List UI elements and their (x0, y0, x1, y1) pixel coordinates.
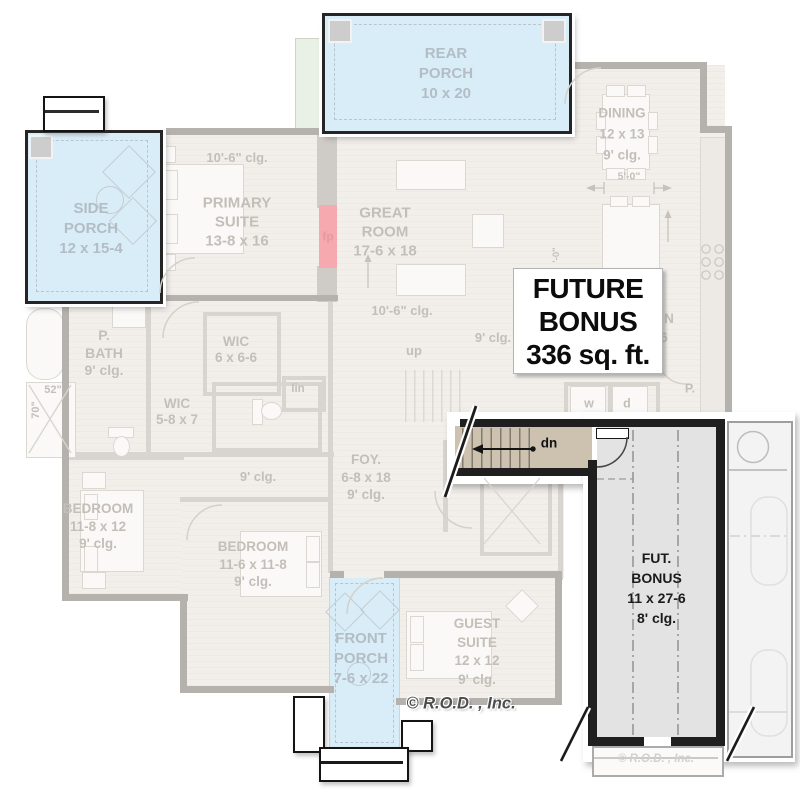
bonus-wall-bottom (671, 737, 725, 746)
dining-chair (648, 136, 658, 154)
stair-down-label: dn (541, 436, 558, 451)
bathtub (26, 308, 64, 380)
shower-dim2-label: 70" (30, 401, 42, 418)
washer-label: w (584, 398, 594, 411)
wall (152, 128, 334, 135)
front-door-opening (344, 571, 384, 578)
sofa (396, 160, 466, 190)
future-bonus-callout: FUTURE BONUS 336 sq. ft. (513, 268, 663, 374)
porch-column (542, 19, 566, 43)
up-label: up (406, 344, 422, 358)
fireplace-wall-upper (317, 134, 337, 208)
bonus-room-label: FUT. BONUS 11 x 27-6 8' clg. (597, 548, 716, 628)
dryer-label: d (623, 398, 631, 411)
hall-ceiling-label: 9' clg. (240, 470, 276, 484)
wall (62, 594, 188, 601)
bonus-wall-left (588, 460, 597, 746)
side-steps (43, 96, 105, 132)
stair-wall-bottom (453, 468, 594, 476)
guest-bath-walls (480, 474, 552, 556)
primary-bath-label: P.BATH9' clg. (84, 327, 123, 380)
copyright-text: © R.O.D. , Inc. (406, 695, 515, 714)
shower-dim-label: 52" (44, 384, 61, 396)
porch-column (328, 19, 352, 43)
kitchen-counter (700, 137, 727, 423)
pantry-label: P. (685, 383, 695, 396)
pillow (306, 562, 320, 588)
toilet-bowl (113, 436, 130, 457)
wall (180, 594, 187, 693)
copyright-text-faint: © R.O.D. , Inc. (618, 753, 694, 765)
w1all (328, 302, 333, 442)
wall (62, 295, 69, 601)
stair-treads (462, 428, 532, 468)
bonus-room-line2: BONUS (597, 568, 716, 588)
toilet-bowl (261, 402, 282, 420)
future-bonus-line2: BONUS (514, 305, 662, 338)
guest-suite-label: GUESTSUITE12 x 129' clg. (454, 615, 501, 689)
front-porch-column (293, 696, 325, 753)
side-porch-label: SIDEPORCH12 x 15-4 (59, 199, 122, 259)
bonus-wall-right (716, 419, 725, 746)
bonus-room-line4: 8' clg. (597, 608, 716, 628)
sofa (396, 264, 466, 296)
pillow (306, 536, 320, 562)
stool (632, 196, 650, 207)
wic1-label: WIC6 x 6-6 (215, 334, 257, 366)
island-dim-label: '-0" (552, 247, 562, 262)
attic-strip (727, 421, 793, 758)
rear-porch-label: REARPORCH10 x 20 (419, 44, 473, 104)
pillow (410, 616, 424, 643)
step-line (321, 761, 403, 764)
pillow (410, 644, 424, 671)
porch-column (29, 135, 53, 159)
pillow (162, 170, 178, 200)
bedroom1-label: BEDROOM11-8 x 129' clg. (63, 500, 134, 553)
great-room-label: GREATROOM17-6 x 18 (353, 204, 416, 261)
nightstand (82, 472, 106, 489)
wall (700, 62, 707, 132)
nightstand (82, 572, 106, 589)
bonus-door-leaf (596, 428, 629, 439)
wall (561, 62, 707, 69)
linen-label: lin (291, 383, 304, 395)
dining-dim-label: 5'-0" (618, 172, 641, 183)
wall (555, 578, 562, 705)
front-porch-label: FRONTPORCH7-6 x 22 (333, 629, 388, 689)
bonus-room-line3: 11 x 27-6 (597, 588, 716, 608)
primary-suite-label: PRIMARYSUITE13-8 x 16 (203, 194, 272, 251)
front-steps (319, 747, 409, 782)
media-chair (472, 214, 504, 248)
wall (180, 686, 334, 693)
wic2-label: WIC5-8 x 7 (156, 396, 198, 428)
step-line (45, 110, 99, 113)
dining-chair (648, 112, 658, 130)
dining-chair (627, 85, 646, 97)
bonus-room-line1: FUT. (597, 548, 716, 568)
great-ceiling-label: 10'-6" clg. (371, 304, 432, 318)
wall (328, 440, 333, 573)
vanity (112, 304, 146, 328)
dining-label: DINING12 x 139' clg. (598, 103, 645, 166)
wall (180, 497, 332, 502)
dining-chair (606, 85, 625, 97)
fireplace-label: fp (322, 231, 333, 244)
pillow (162, 214, 178, 244)
future-bonus-line1: FUTURE (514, 272, 662, 305)
kitchen-fragment-n: N (664, 312, 674, 326)
bonus-wall-bottom (588, 737, 644, 746)
primary-ceiling-label: 10'-6" clg. (206, 151, 267, 165)
floor-plan: REARPORCH10 x 20SIDEPORCH12 x 15-4FRONTP… (0, 0, 800, 800)
wall (146, 299, 151, 457)
bonus-wall-top (460, 419, 725, 427)
foyer-label: FOY.6-8 x 189' clg. (341, 451, 391, 504)
mid-ceiling-label: 9' clg. (475, 331, 511, 345)
stool (610, 196, 628, 207)
future-bonus-line3: 336 sq. ft. (514, 338, 662, 371)
wall (725, 126, 732, 423)
bedroom2-label: BEDROOM11-6 x 11-89' clg. (218, 538, 289, 591)
